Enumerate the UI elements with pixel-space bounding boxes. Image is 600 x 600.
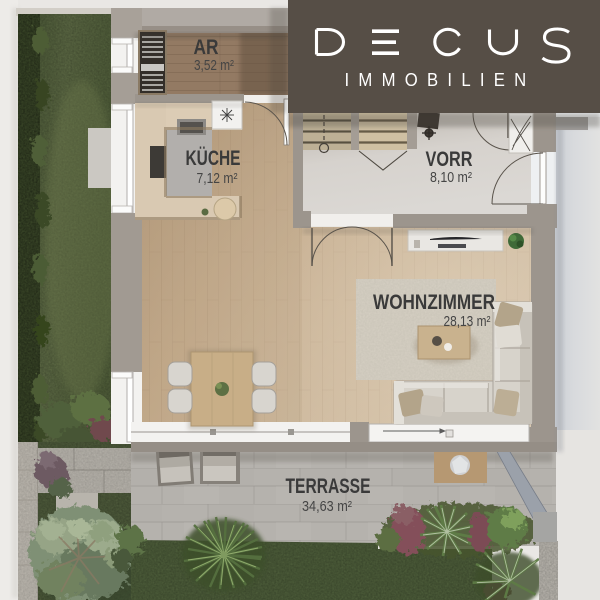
svg-text:VORR: VORR [426, 148, 473, 171]
svg-text:TERRASSE: TERRASSE [286, 475, 371, 498]
svg-text:AR: AR [194, 36, 219, 59]
svg-text:28,13 m²: 28,13 m² [444, 314, 491, 330]
svg-text:WOHNZIMMER: WOHNZIMMER [373, 291, 495, 314]
svg-text:8,10 m²: 8,10 m² [430, 170, 472, 186]
svg-text:34,63 m²: 34,63 m² [302, 499, 352, 515]
svg-text:IMMOBILIEN: IMMOBILIEN [345, 70, 536, 90]
svg-text:7,12 m²: 7,12 m² [197, 171, 238, 187]
svg-text:KÜCHE: KÜCHE [186, 147, 241, 170]
svg-text:3,52 m²: 3,52 m² [194, 58, 234, 74]
